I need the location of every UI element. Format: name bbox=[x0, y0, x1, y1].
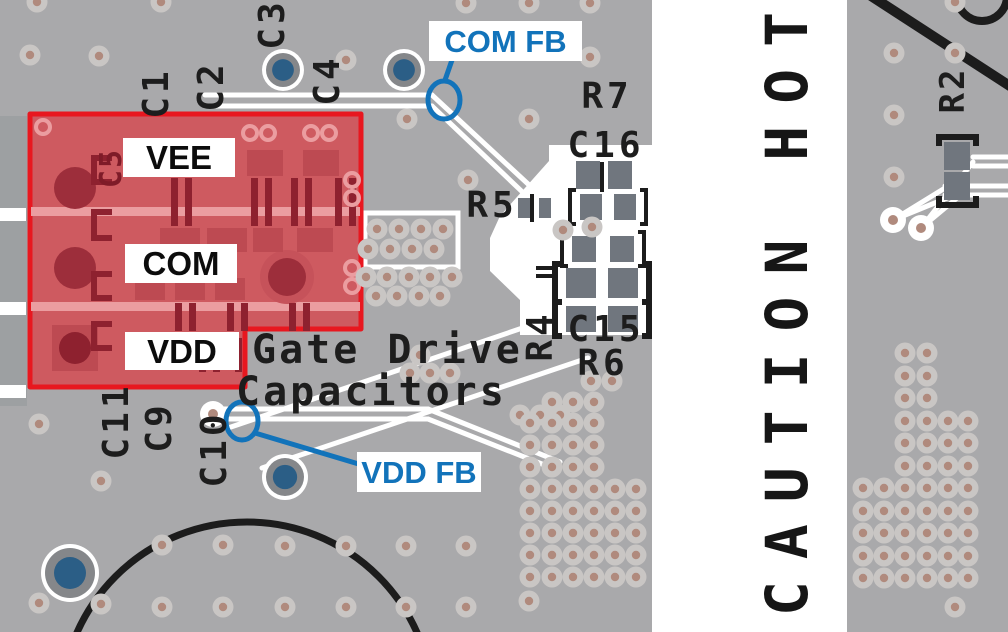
via bbox=[611, 551, 619, 559]
refdes-r4: R4 bbox=[523, 310, 559, 361]
via bbox=[342, 542, 350, 550]
via bbox=[944, 574, 952, 582]
via bbox=[590, 507, 598, 515]
via bbox=[923, 394, 931, 402]
silkscreen-capacitors: Capacitors bbox=[236, 372, 507, 412]
cap-silkscreen-bar bbox=[335, 178, 342, 226]
via bbox=[393, 292, 401, 300]
via bbox=[590, 398, 598, 406]
via bbox=[923, 507, 931, 515]
via bbox=[525, 115, 533, 123]
via bbox=[901, 417, 909, 425]
via bbox=[923, 462, 931, 470]
via bbox=[901, 484, 909, 492]
via bbox=[923, 349, 931, 357]
via bbox=[890, 173, 898, 181]
via bbox=[526, 463, 534, 471]
cap-silkscreen-bar bbox=[251, 178, 258, 226]
via bbox=[281, 603, 289, 611]
via bbox=[526, 485, 534, 493]
via bbox=[859, 484, 867, 492]
callout-vdd-fb: VDD FB bbox=[357, 452, 481, 492]
via bbox=[97, 477, 105, 485]
via bbox=[402, 542, 410, 550]
via bbox=[430, 245, 438, 253]
via bbox=[859, 507, 867, 515]
via bbox=[901, 462, 909, 470]
refdes-c16: C16 bbox=[567, 128, 644, 164]
via bbox=[462, 603, 470, 611]
via bbox=[448, 273, 456, 281]
via bbox=[588, 223, 596, 231]
via bbox=[569, 529, 577, 537]
via bbox=[158, 541, 166, 549]
via bbox=[901, 552, 909, 560]
via bbox=[611, 529, 619, 537]
via bbox=[964, 439, 972, 447]
via bbox=[880, 484, 888, 492]
via bbox=[462, 542, 470, 550]
via bbox=[590, 529, 598, 537]
via bbox=[944, 417, 952, 425]
via bbox=[590, 551, 598, 559]
cap-silkscreen-bar bbox=[189, 303, 196, 331]
via bbox=[35, 599, 43, 607]
board-left-edge bbox=[0, 116, 27, 406]
cap-silkscreen-bar bbox=[227, 303, 234, 331]
via bbox=[888, 215, 898, 225]
refdes-c10: C10 bbox=[197, 410, 233, 487]
via bbox=[901, 349, 909, 357]
via bbox=[611, 485, 619, 493]
refdes-c4: C4 bbox=[310, 54, 346, 105]
via bbox=[859, 552, 867, 560]
via bbox=[526, 551, 534, 559]
cap-silkscreen-bar bbox=[185, 178, 192, 226]
via bbox=[386, 245, 394, 253]
via bbox=[859, 529, 867, 537]
cap-silkscreen-bar bbox=[171, 178, 178, 226]
via bbox=[944, 529, 952, 537]
via bbox=[54, 557, 86, 589]
via bbox=[95, 52, 103, 60]
via bbox=[923, 372, 931, 380]
via bbox=[569, 507, 577, 515]
refdes-c1: C1 bbox=[139, 67, 175, 118]
via bbox=[859, 574, 867, 582]
via bbox=[880, 552, 888, 560]
cap-silkscreen-bar bbox=[241, 303, 248, 331]
via bbox=[901, 507, 909, 515]
via bbox=[417, 225, 425, 233]
via bbox=[880, 507, 888, 515]
refdes-c2: C2 bbox=[194, 60, 230, 111]
via bbox=[548, 529, 556, 537]
via bbox=[526, 507, 534, 515]
via bbox=[35, 420, 43, 428]
via bbox=[590, 463, 598, 471]
via bbox=[901, 439, 909, 447]
via bbox=[951, 603, 959, 611]
silkscreen-caution-hot: CAUTION HOT bbox=[758, 0, 816, 616]
via bbox=[916, 223, 926, 233]
via bbox=[548, 485, 556, 493]
via bbox=[526, 529, 534, 537]
via bbox=[590, 419, 598, 427]
via bbox=[611, 573, 619, 581]
via bbox=[526, 441, 534, 449]
via bbox=[415, 292, 423, 300]
via bbox=[548, 463, 556, 471]
refdes-r6: R6 bbox=[577, 346, 628, 382]
via bbox=[590, 573, 598, 581]
via bbox=[944, 552, 952, 560]
via bbox=[372, 292, 380, 300]
via bbox=[219, 541, 227, 549]
pcb-screenshot: C1 C2 C3 C4 R5 R7 C16 C15 R6 R4 C11 C9 C… bbox=[0, 0, 1008, 632]
via bbox=[951, 49, 959, 57]
via bbox=[526, 573, 534, 581]
via bbox=[923, 552, 931, 560]
via bbox=[342, 603, 350, 611]
via bbox=[548, 398, 556, 406]
via bbox=[890, 49, 898, 57]
via bbox=[590, 441, 598, 449]
callout-com-fb: COM FB bbox=[429, 21, 582, 61]
cap-silkscreen-bar bbox=[305, 178, 312, 226]
via bbox=[548, 419, 556, 427]
via bbox=[586, 53, 594, 61]
via bbox=[569, 441, 577, 449]
net-label-vee: VEE bbox=[123, 138, 235, 177]
via bbox=[373, 225, 381, 233]
via bbox=[590, 485, 598, 493]
net-label-com: COM bbox=[125, 244, 237, 283]
via bbox=[632, 485, 640, 493]
cap-silkscreen-bar bbox=[291, 178, 298, 226]
via bbox=[362, 273, 370, 281]
via bbox=[944, 507, 952, 515]
via bbox=[272, 59, 294, 81]
via bbox=[964, 484, 972, 492]
via bbox=[526, 419, 534, 427]
via bbox=[569, 573, 577, 581]
refdes-c3: C3 bbox=[255, 0, 291, 50]
via bbox=[569, 463, 577, 471]
via bbox=[525, 597, 533, 605]
via bbox=[944, 484, 952, 492]
via bbox=[273, 465, 297, 489]
via bbox=[464, 176, 472, 184]
via bbox=[901, 574, 909, 582]
via bbox=[923, 417, 931, 425]
refdes-r5: R5 bbox=[466, 188, 517, 224]
via bbox=[97, 600, 105, 608]
via bbox=[548, 551, 556, 559]
via bbox=[281, 542, 289, 550]
via bbox=[964, 574, 972, 582]
via bbox=[964, 552, 972, 560]
via bbox=[923, 529, 931, 537]
via bbox=[964, 417, 972, 425]
refdes-r2: R2 bbox=[936, 67, 970, 114]
via bbox=[632, 551, 640, 559]
via bbox=[403, 115, 411, 123]
via bbox=[405, 273, 413, 281]
via bbox=[569, 398, 577, 406]
via bbox=[439, 225, 447, 233]
via bbox=[611, 507, 619, 515]
via bbox=[426, 273, 434, 281]
via bbox=[923, 574, 931, 582]
via bbox=[548, 507, 556, 515]
via bbox=[559, 226, 567, 234]
via bbox=[436, 292, 444, 300]
via bbox=[408, 245, 416, 253]
refdes-c9: C9 bbox=[142, 401, 178, 452]
via bbox=[901, 394, 909, 402]
via bbox=[880, 574, 888, 582]
via bbox=[26, 51, 34, 59]
via bbox=[569, 485, 577, 493]
via bbox=[393, 59, 415, 81]
via bbox=[569, 551, 577, 559]
via bbox=[901, 529, 909, 537]
via bbox=[569, 419, 577, 427]
via bbox=[158, 603, 166, 611]
via bbox=[923, 484, 931, 492]
via bbox=[944, 462, 952, 470]
via bbox=[632, 529, 640, 537]
silkscreen-gate-drive: Gate Drive bbox=[252, 330, 523, 370]
via bbox=[964, 462, 972, 470]
via bbox=[964, 529, 972, 537]
via bbox=[944, 439, 952, 447]
via bbox=[880, 529, 888, 537]
via bbox=[890, 111, 898, 119]
cap-silkscreen-bar bbox=[175, 303, 182, 331]
refdes-r7: R7 bbox=[581, 79, 632, 115]
via bbox=[383, 273, 391, 281]
via bbox=[395, 225, 403, 233]
cap-silkscreen-bar bbox=[265, 178, 272, 226]
via bbox=[548, 573, 556, 581]
via bbox=[923, 439, 931, 447]
via bbox=[402, 603, 410, 611]
via bbox=[901, 372, 909, 380]
refdes-c11: C11 bbox=[99, 382, 135, 459]
via bbox=[548, 441, 556, 449]
net-label-vdd: VDD bbox=[125, 332, 239, 370]
via bbox=[964, 507, 972, 515]
via bbox=[632, 507, 640, 515]
via bbox=[632, 573, 640, 581]
via bbox=[364, 245, 372, 253]
via bbox=[219, 603, 227, 611]
